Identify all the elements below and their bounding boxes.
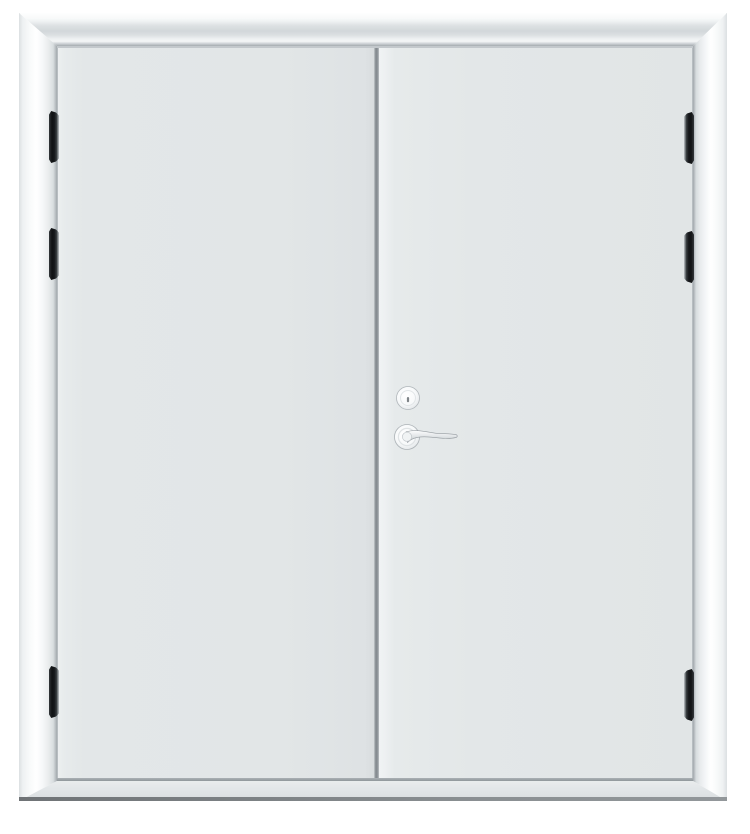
hinge-right-bottom (684, 669, 694, 721)
hinge-left-bottom (49, 666, 59, 718)
door-top-edge-shade (57, 46, 693, 48)
double-door-product-photo (0, 0, 750, 834)
hinge-left-middle (49, 228, 59, 280)
frame-head (19, 13, 727, 46)
door-hardware (370, 370, 470, 460)
hinge-left-top (49, 111, 59, 163)
left-door-leaf (57, 46, 374, 781)
keyhole (407, 397, 409, 402)
lever-handle (395, 425, 458, 450)
hinge-right-top (684, 112, 694, 164)
deadbolt-lock (397, 387, 420, 410)
ground-shadow-line (19, 797, 727, 801)
handle-hub (402, 432, 411, 441)
door-bottom-edge (57, 778, 693, 781)
hinge-right-middle (684, 231, 694, 283)
frame-right-jamb (693, 13, 727, 801)
